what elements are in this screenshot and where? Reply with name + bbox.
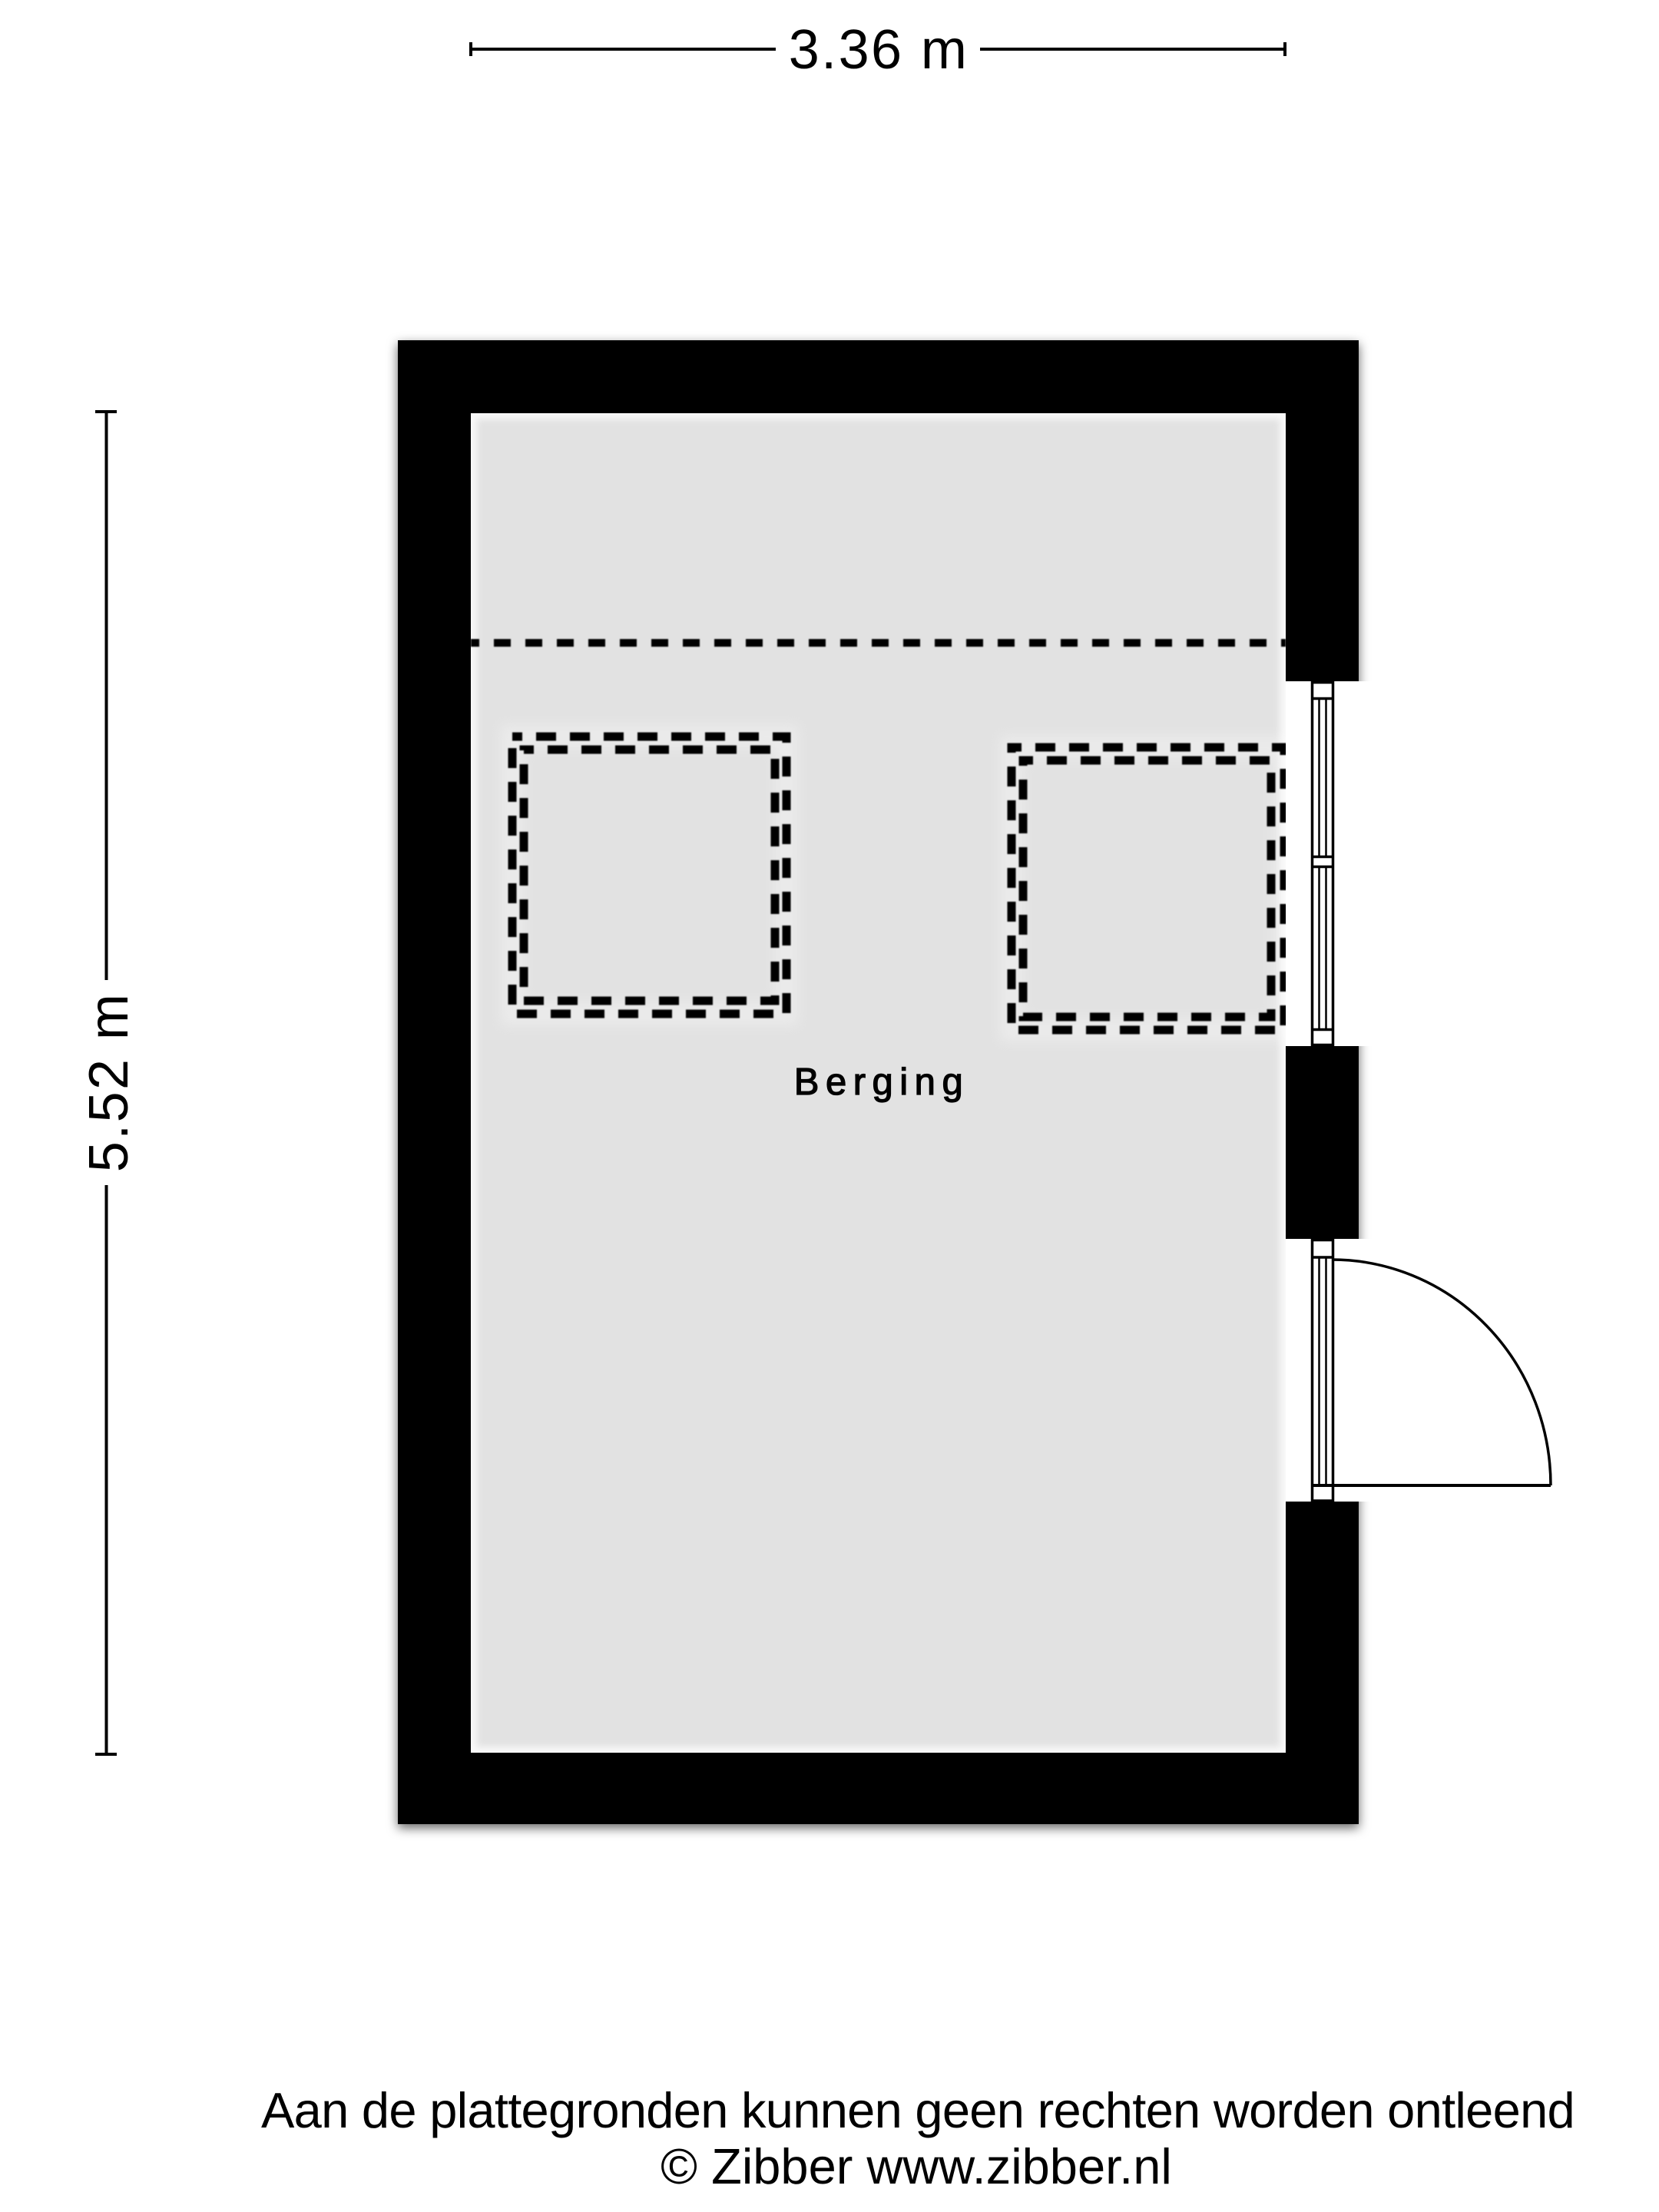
svg-text:5.52 m: 5.52 m <box>78 992 140 1173</box>
svg-text:Aan de plattegronden kunnen ge: Aan de plattegronden kunnen geen rechten… <box>261 2082 1575 2138</box>
svg-text:3.36 m: 3.36 m <box>789 19 969 81</box>
svg-text:© Zibber www.zibber.nl: © Zibber www.zibber.nl <box>661 2138 1172 2194</box>
svg-text:Berging: Berging <box>794 1061 969 1103</box>
